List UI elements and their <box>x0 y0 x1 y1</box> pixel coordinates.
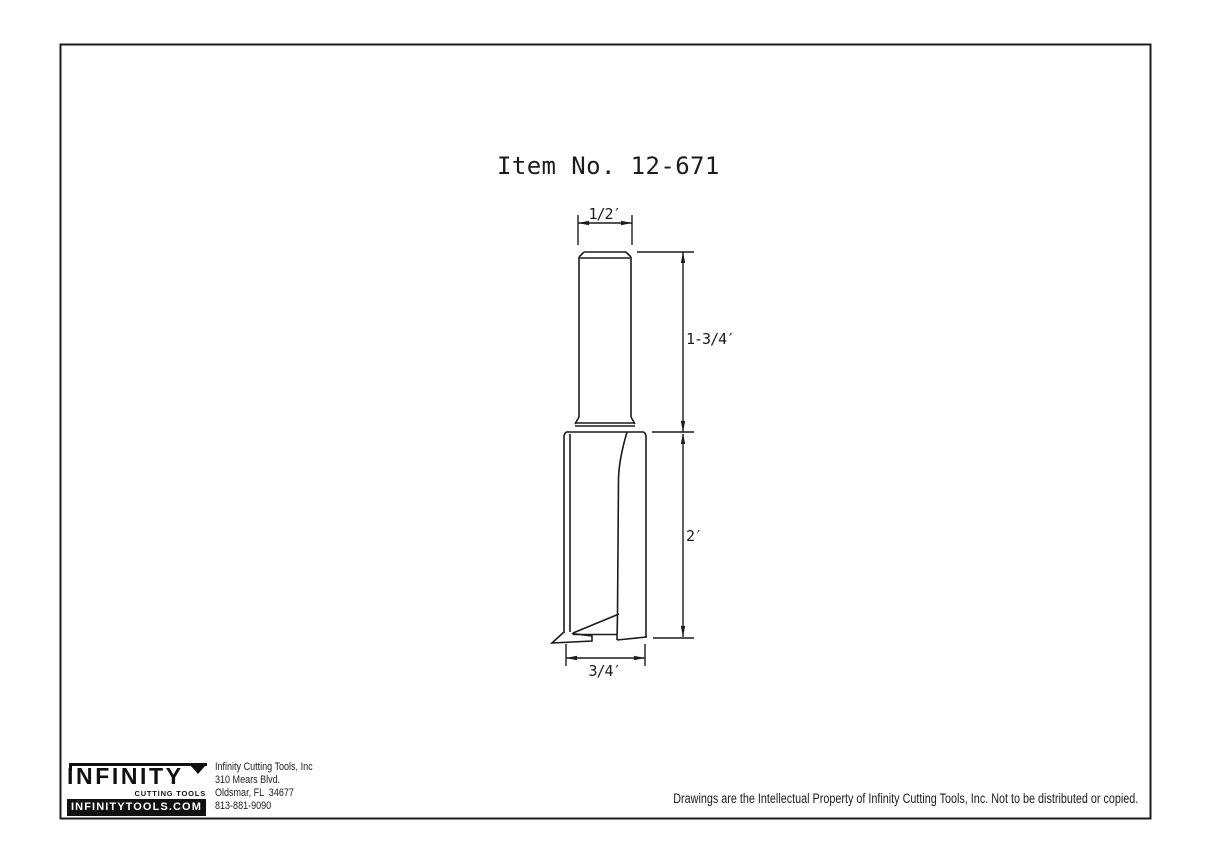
drawing-canvas <box>0 0 1214 858</box>
dim-label-shank-diameter: 1/2′ <box>577 205 632 223</box>
company-address-block: Infinity Cutting Tools, Inc 310 Mears Bl… <box>215 761 313 813</box>
dim-label-shank-length: 1-3/4′ <box>686 330 734 348</box>
router-bit-drawing <box>552 252 646 643</box>
logo-website-badge: INFINITYTOOLS.COM <box>67 799 206 816</box>
dim-label-cutting-diameter: 3/4′ <box>577 662 632 680</box>
dimension-lines <box>566 215 694 666</box>
copyright-notice: Drawings are the Intellectual Property o… <box>673 791 1138 806</box>
company-city-state-zip: Oldsmar, FL 34677 <box>215 787 313 800</box>
company-phone: 813-881-9090 <box>215 800 313 813</box>
dim-label-cutting-length: 2′ <box>686 527 702 545</box>
company-name: Infinity Cutting Tools, Inc <box>215 761 313 774</box>
cutter-tip <box>552 632 592 643</box>
cutting-edge-diagonal <box>573 614 619 633</box>
logo-brand-text: INFINITY <box>67 766 184 786</box>
dimension-arrowheads <box>566 221 685 660</box>
cutter-outline <box>552 432 646 643</box>
company-street: 310 Mears Blvd. <box>215 774 313 787</box>
drawing-sheet: Item No. 12-671 1/2′ 1-3/4′ 2′ 3/4′ INFI… <box>0 0 1214 858</box>
item-number-title: Item No. 12-671 <box>497 152 720 180</box>
logo-tagline: CUTTING TOOLS <box>66 789 206 798</box>
shank-outline <box>575 252 635 426</box>
flute-curve <box>617 432 627 640</box>
logo-down-arrow-icon <box>190 765 206 774</box>
